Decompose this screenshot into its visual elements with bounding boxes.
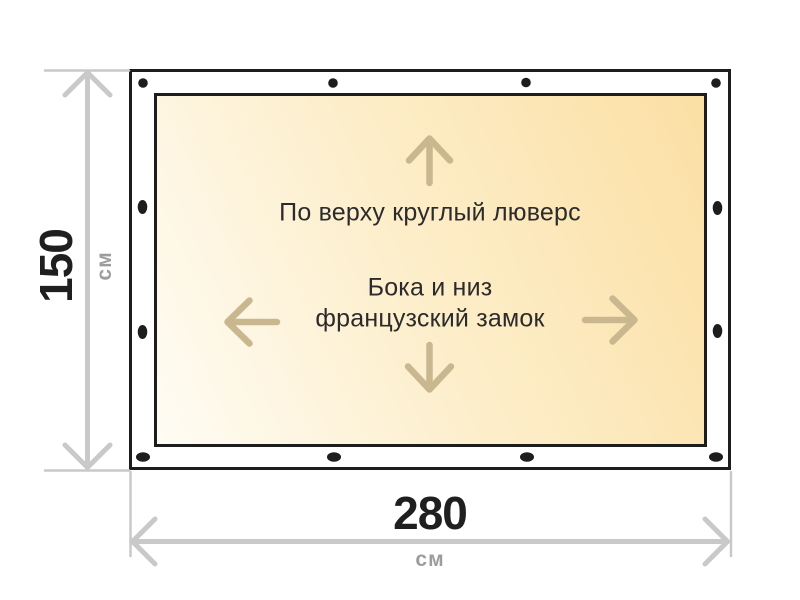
grommet-dot [328,78,338,88]
lock-slot-dot [520,452,534,462]
side-fastening-label-line1: Бока и низ [368,274,493,303]
top-fastening-label: По верху круглый люверс [279,199,581,228]
lock-slot-dot [713,324,723,338]
width-unit-label: см [415,548,444,572]
grommet-dot [138,78,148,88]
lock-slot-dot [138,325,148,339]
arrow-down-icon [408,345,451,390]
grommet-dot [711,78,721,88]
side-fastening-label-line2: французский замок [315,305,544,334]
width-value-label: 280 [393,486,467,540]
height-unit-label: см [93,251,117,280]
direction-arrows [228,139,635,390]
arrow-up-icon [409,139,450,184]
arrow-left-icon [228,301,278,344]
grommet-dot [521,78,531,88]
lock-slot-dot [138,200,148,214]
lock-slot-dot [709,452,723,462]
lock-slot-dot [713,201,723,215]
lock-slot-dot [136,452,150,462]
tarp-dimension-diagram: По верху круглый люверс Бока и низ франц… [0,0,800,600]
height-value-label: 150 [29,229,83,303]
lock-slot-dot [327,452,341,462]
arrow-right-icon [585,299,635,342]
